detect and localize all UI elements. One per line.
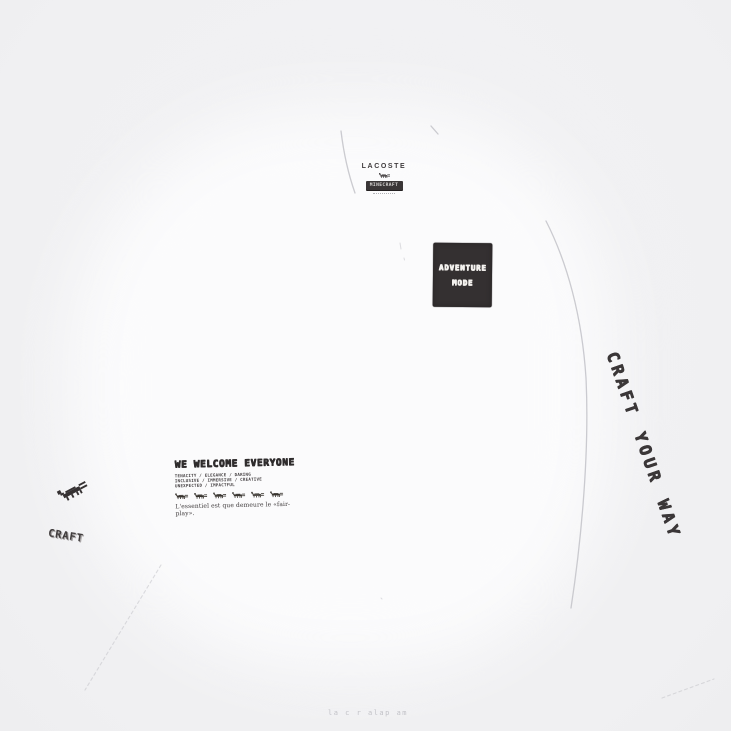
minecraft-logo: MINECRAFT bbox=[366, 181, 403, 190]
patch-line2: MODE bbox=[452, 278, 473, 287]
brand-lockup: LACOSTE MINECRAFT bbox=[356, 163, 412, 194]
right-sleeve-seam bbox=[546, 221, 587, 608]
bottom-right-seam bbox=[662, 679, 714, 698]
logo-fine-print bbox=[373, 193, 395, 194]
adventure-mode-patch: ADVENTURE MODE bbox=[433, 243, 493, 308]
minecraft-logo-text: MINECRAFT bbox=[370, 183, 399, 188]
fabric-specks bbox=[381, 243, 405, 599]
croc-icon bbox=[194, 492, 207, 500]
crocodile-icon bbox=[379, 172, 390, 179]
collar-seam-right-dash bbox=[431, 126, 438, 134]
chest-print-tagline: L'essentiel est que demeure le «fair-pla… bbox=[175, 500, 301, 517]
croc-row bbox=[175, 490, 301, 501]
patch-line1: ADVENTURE bbox=[439, 263, 487, 273]
croc-icon bbox=[232, 491, 245, 499]
croc-icon bbox=[213, 491, 226, 499]
croc-icon bbox=[270, 490, 283, 498]
croc-icon bbox=[251, 491, 264, 499]
chest-print-values: TENACITY / ELEGANCE / DARING INCLUSIVE /… bbox=[175, 471, 301, 489]
photo-watermark: la c r alap am bbox=[328, 709, 428, 717]
chest-print: WE WELCOME EVERYONE TENACITY / ELEGANCE … bbox=[174, 457, 301, 517]
lacoste-wordmark: LACOSTE bbox=[362, 163, 407, 170]
croc-icon bbox=[175, 492, 188, 500]
chest-print-title: WE WELCOME EVERYONE bbox=[174, 457, 300, 471]
collar-seam-left bbox=[341, 131, 355, 193]
left-hem-seam bbox=[85, 565, 161, 690]
